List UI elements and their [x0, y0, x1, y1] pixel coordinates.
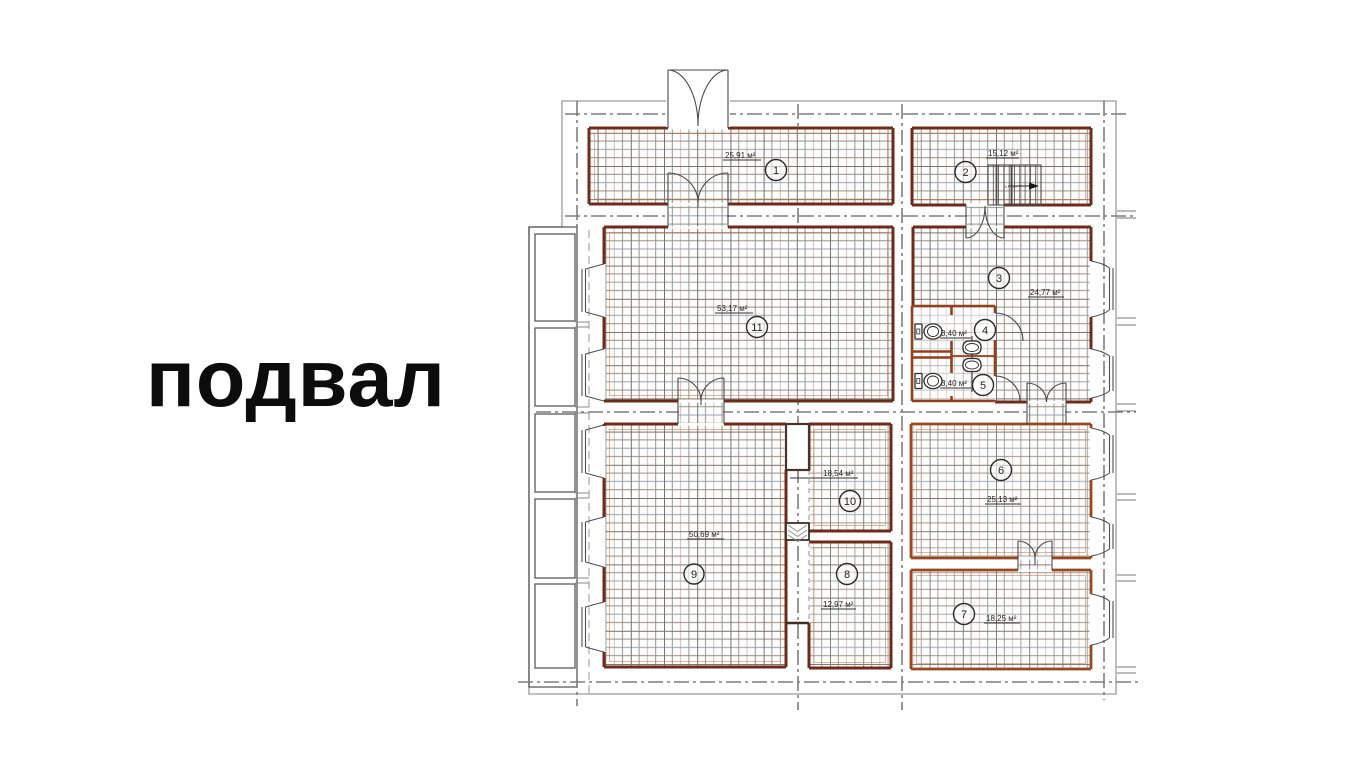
svg-text:2: 2 — [962, 167, 968, 179]
svg-text:25,91 м²: 25,91 м² — [725, 151, 756, 160]
svg-text:3: 3 — [996, 273, 1002, 285]
svg-text:10: 10 — [844, 496, 856, 508]
svg-text:5: 5 — [980, 380, 986, 392]
svg-text:50,69 м²: 50,69 м² — [689, 530, 720, 539]
svg-text:8: 8 — [844, 569, 850, 581]
svg-text:6: 6 — [998, 465, 1004, 477]
svg-text:25,13 м²: 25,13 м² — [987, 495, 1018, 504]
svg-text:0,3 про: 0,3 про — [1005, 185, 1017, 189]
svg-text:12,97 м²: 12,97 м² — [823, 600, 854, 609]
svg-text:24,77 м²: 24,77 м² — [1030, 288, 1061, 297]
svg-text:1: 1 — [773, 165, 779, 177]
svg-text:9: 9 — [691, 569, 697, 581]
svg-text:3,40 м²: 3,40 м² — [941, 329, 967, 338]
svg-text:7: 7 — [961, 609, 967, 621]
svg-text:18,54 м²: 18,54 м² — [823, 469, 854, 478]
svg-text:3,40 м²: 3,40 м² — [941, 379, 967, 388]
svg-text:15,12 м²: 15,12 м² — [988, 149, 1019, 158]
svg-text:18,25 м²: 18,25 м² — [986, 614, 1017, 623]
svg-text:53,17 м²: 53,17 м² — [717, 304, 748, 313]
svg-text:4: 4 — [982, 325, 988, 337]
svg-text:11: 11 — [751, 322, 762, 334]
